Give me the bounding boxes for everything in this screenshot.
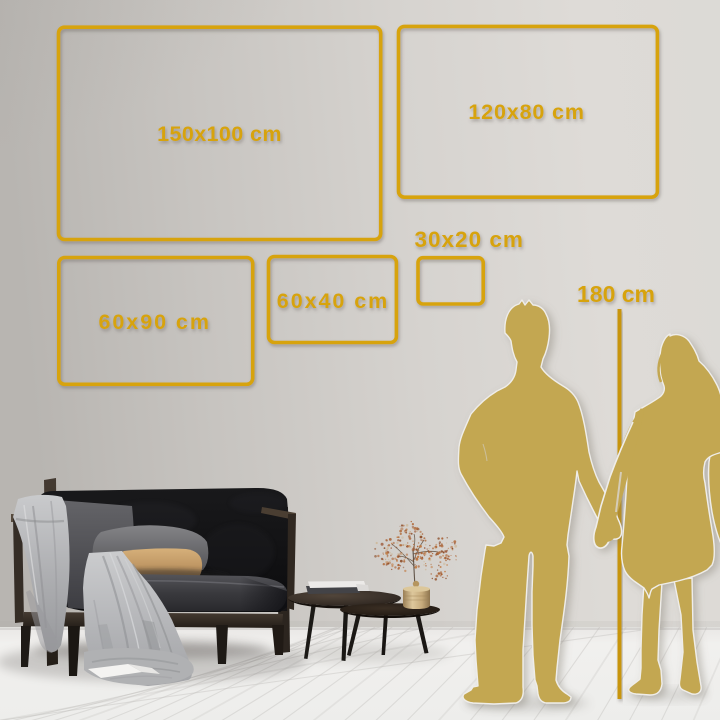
svg-text:60x40 cm: 60x40 cm — [277, 289, 389, 313]
svg-text:30x20 cm: 30x20 cm — [415, 227, 524, 252]
svg-text:180 cm: 180 cm — [577, 281, 655, 307]
svg-text:60x90 cm: 60x90 cm — [98, 310, 210, 334]
svg-text:150x100 cm: 150x100 cm — [157, 122, 282, 146]
svg-text:120x80 cm: 120x80 cm — [468, 100, 584, 124]
